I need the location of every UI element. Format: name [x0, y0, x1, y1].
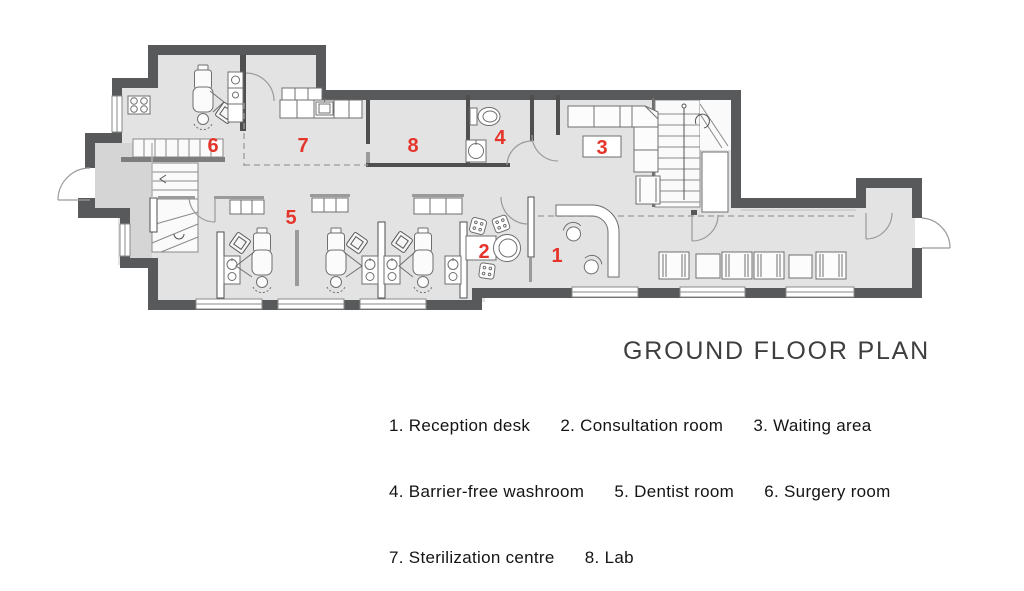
- legend-line-2: 4. Barrier-free washroom 5. Dentist room…: [389, 481, 891, 503]
- room-number-6: 6: [207, 135, 218, 157]
- right-entry-door: [922, 218, 950, 248]
- window: [278, 299, 344, 309]
- window: [120, 224, 130, 256]
- legend-line-3: 7. Sterilization centre 8. Lab: [389, 547, 891, 569]
- window: [572, 287, 638, 297]
- room-number-8: 8: [407, 135, 418, 157]
- legend: 1. Reception desk 2. Consultation room 3…: [389, 371, 891, 591]
- room-number-5: 5: [285, 207, 296, 229]
- window: [196, 299, 262, 309]
- room-number-1: 1: [551, 245, 562, 267]
- legend-line-1: 1. Reception desk 2. Consultation room 3…: [389, 415, 891, 437]
- window: [360, 299, 426, 309]
- sterilizer-unit: [128, 96, 150, 114]
- right-stairs: [655, 100, 731, 212]
- corridor-seats: [659, 252, 846, 279]
- room-number-2: 2: [478, 241, 489, 263]
- window: [680, 287, 745, 297]
- page-title: GROUND FLOOR PLAN: [623, 337, 930, 366]
- room-number-3: 3: [596, 137, 607, 159]
- room-number-4: 4: [494, 127, 506, 149]
- entry-door: [58, 168, 90, 200]
- room-number-7: 7: [297, 135, 308, 157]
- window: [786, 287, 854, 297]
- window: [112, 96, 122, 132]
